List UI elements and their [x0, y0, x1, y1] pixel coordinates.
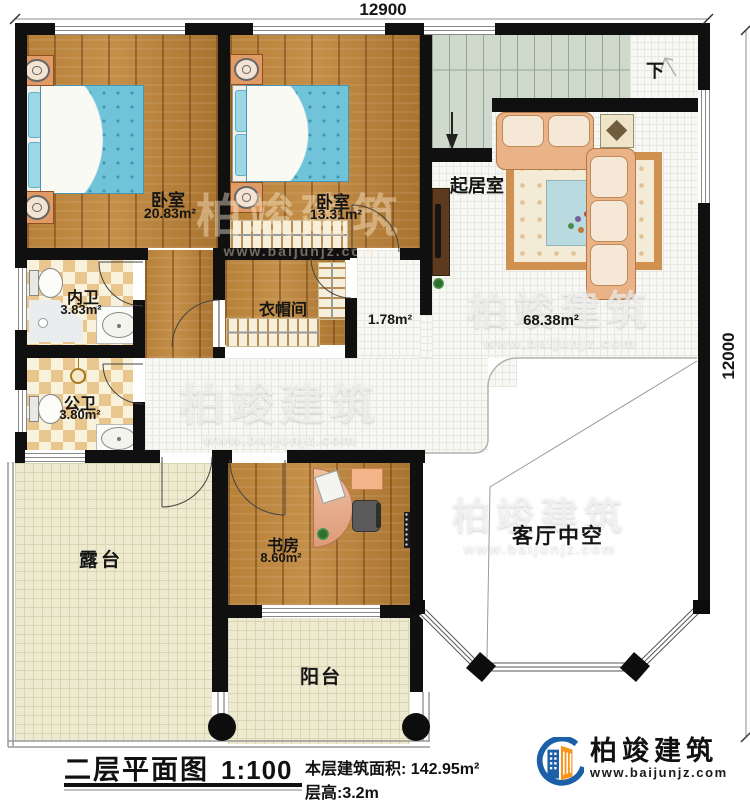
logo-text: 柏竣建筑 www.baijunjz.com [590, 737, 728, 780]
title-underline [64, 783, 302, 787]
window [25, 450, 85, 463]
wall [15, 330, 27, 390]
bay-post-icon [620, 652, 650, 682]
lamp-icon [234, 186, 259, 209]
window [424, 23, 495, 35]
logo-name: 柏竣建筑 [590, 737, 728, 765]
floor-bedroom1-entry [145, 250, 213, 358]
wall [698, 203, 710, 607]
title-underline-2 [64, 789, 302, 791]
nightstand-icon [230, 54, 263, 85]
sofa-cushion-icon [548, 115, 590, 147]
wall [212, 605, 262, 618]
wall [698, 23, 710, 90]
wall [492, 98, 698, 112]
nightstand-icon [230, 182, 263, 213]
closet-rack-icon [226, 318, 320, 347]
void-outline [481, 361, 697, 665]
wall [345, 298, 357, 358]
window [55, 23, 185, 35]
bed-sheet-icon [247, 86, 348, 181]
wall [495, 23, 710, 35]
room-label-balcony: 阳台 [261, 662, 381, 689]
room-label-void: 客厅中空 [478, 520, 638, 550]
plant-icon [433, 278, 444, 289]
room-label-closet: 衣帽间 [223, 296, 343, 320]
wall [212, 605, 228, 692]
room-label-living: 起居室 [417, 172, 537, 198]
floor-area-label: 本层建筑面积: [305, 761, 406, 778]
shower-drain-icon [38, 318, 48, 328]
desk-shelf-icon [351, 468, 383, 490]
window [262, 605, 380, 618]
wardrobe-rack-icon [230, 220, 348, 250]
room-label-terrace: 露台 [41, 545, 161, 572]
bay-post-icon [466, 652, 496, 682]
sofa-cushion-icon [502, 115, 544, 147]
area-label-bath-public: 3.80m² [20, 407, 140, 422]
logo-url: www.baijunjz.com [590, 765, 728, 780]
floor-terrace [15, 463, 212, 741]
wall [420, 250, 432, 315]
wall [385, 23, 424, 35]
wall [228, 450, 232, 463]
floor-curve-corner [488, 358, 517, 387]
area-label-study: 8.60m² [221, 550, 341, 565]
floor-area-line: 本层建筑面积: 142.95m² [305, 755, 479, 779]
area-label-living: 68.38m² [491, 312, 611, 329]
stairs-lower-icon [432, 98, 492, 148]
plan-title: 二层平面图 [64, 755, 209, 785]
sofa-cushion-icon [590, 156, 628, 198]
wall [410, 450, 423, 607]
wall [15, 450, 25, 463]
dimension-top: 12900 [343, 0, 423, 20]
wall [145, 450, 160, 463]
logo: 柏竣建筑 www.baijunjz.com [534, 737, 728, 795]
ceiling-lamp-icon [70, 368, 86, 384]
area-label-bedroom1: 20.83m² [110, 205, 230, 221]
area-label-bedroom2: 13.31m² [276, 206, 396, 222]
stairs-icon [432, 35, 630, 98]
floor-plan: 柏竣建筑 www.baijunjz.com 柏竣建筑 www.baijunjz.… [0, 0, 750, 807]
floor-area-value: 142.95m² [411, 761, 480, 778]
sofa-cushion-icon [590, 244, 628, 286]
wall [185, 23, 253, 35]
sofa-cushion-icon [590, 200, 628, 242]
lamp-icon [234, 58, 259, 81]
wall [218, 248, 350, 260]
side-table-icon [600, 114, 634, 148]
floor-height-line: 层高:3.2m [305, 779, 379, 803]
dimension-right: 12000 [719, 316, 739, 396]
tv-icon [435, 204, 441, 258]
floor-hallway [145, 358, 488, 453]
wall [15, 345, 145, 358]
wall [15, 23, 27, 268]
wall [380, 605, 423, 618]
chair-back-icon [376, 503, 381, 528]
bed-icon [246, 85, 349, 182]
window [253, 23, 385, 35]
wall [213, 347, 225, 358]
logo-icon [534, 737, 584, 795]
lamp-icon [24, 59, 50, 82]
stairs-down-label: 下 [640, 57, 670, 83]
sink-icon [101, 427, 136, 450]
bed-sheet-icon [41, 86, 143, 193]
wall [410, 605, 423, 692]
wall [345, 248, 357, 258]
bed-icon [40, 85, 144, 194]
area-label-corridor: 1.78m² [330, 311, 450, 327]
wall [15, 248, 148, 260]
scale-label: 1:100 [221, 755, 293, 785]
wall [212, 450, 228, 463]
window [698, 90, 710, 203]
lamp-icon [24, 195, 50, 220]
page-title: 二层平面图1:100 [64, 748, 293, 787]
wall [420, 35, 432, 250]
floor-corridor [357, 250, 420, 358]
wall [287, 450, 425, 463]
bay-window [410, 600, 710, 682]
wall [85, 450, 145, 463]
wall [420, 148, 492, 162]
area-label-bath-inner: 3.83m² [21, 302, 141, 317]
